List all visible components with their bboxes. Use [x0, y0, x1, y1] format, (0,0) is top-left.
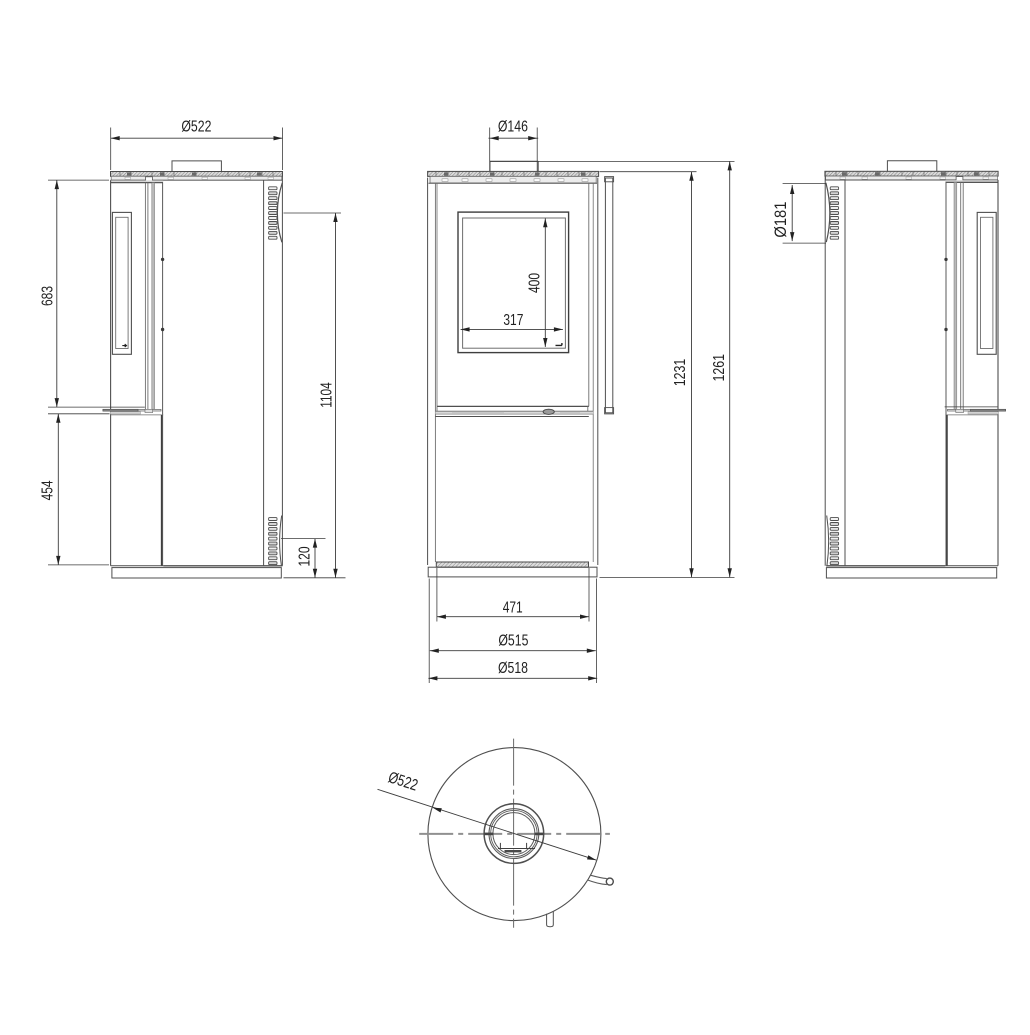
- svg-text:120: 120: [297, 546, 314, 566]
- svg-text:1261: 1261: [711, 354, 728, 382]
- svg-text:Ø522: Ø522: [181, 118, 211, 135]
- svg-text:Ø181: Ø181: [771, 202, 790, 238]
- svg-text:1104: 1104: [319, 382, 336, 408]
- svg-text:Ø146: Ø146: [498, 118, 528, 135]
- svg-text:454: 454: [40, 480, 57, 500]
- svg-text:317: 317: [503, 312, 523, 329]
- svg-text:400: 400: [526, 273, 543, 293]
- svg-text:Ø515: Ø515: [498, 632, 528, 649]
- svg-text:1231: 1231: [672, 359, 689, 387]
- svg-text:Ø518: Ø518: [498, 660, 528, 677]
- svg-text:471: 471: [503, 600, 523, 617]
- svg-text:683: 683: [40, 286, 57, 306]
